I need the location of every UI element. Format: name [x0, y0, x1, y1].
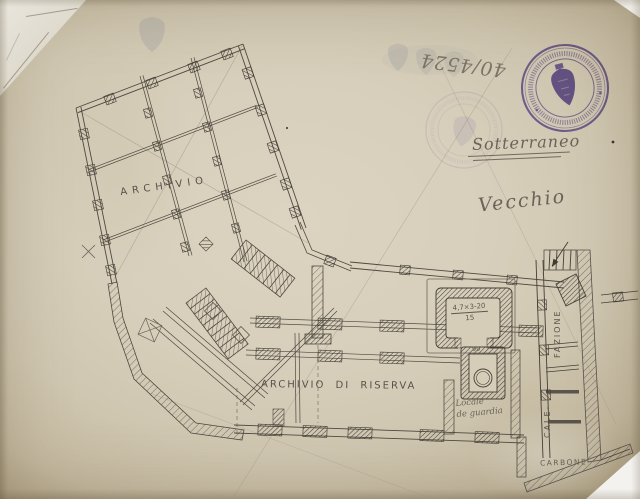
shield-icon [547, 61, 580, 109]
plan-drawing [0, 0, 640, 499]
construction-lines [79, 44, 616, 499]
column-mark-filled [199, 237, 213, 251]
direction-arrow [552, 242, 568, 267]
entrance-stair [544, 250, 576, 270]
staircase [186, 288, 248, 359]
scanned-floor-plan: ARCHIVIO ARCHIVIO DI RISERVA Sotterraneo… [0, 0, 640, 499]
archive-stamp [512, 35, 617, 140]
staircase [231, 240, 295, 297]
ghost-stamp [420, 86, 508, 174]
wing-archivio [76, 44, 306, 284]
x-mark [82, 245, 95, 258]
carbone-wall [517, 437, 526, 477]
